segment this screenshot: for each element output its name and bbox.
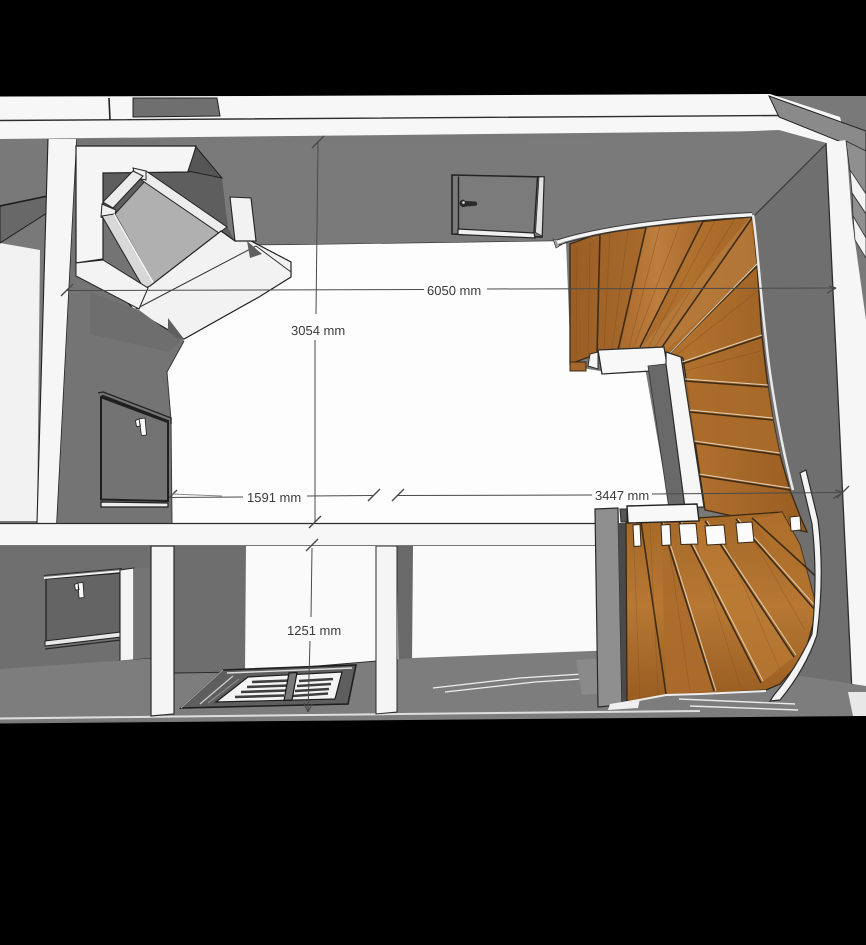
svg-text:3447 mm: 3447 mm <box>595 488 649 503</box>
svg-text:6050 mm: 6050 mm <box>427 283 481 298</box>
svg-text:1591 mm: 1591 mm <box>247 490 301 505</box>
svg-text:3054 mm: 3054 mm <box>291 323 345 338</box>
svg-text:1251 mm: 1251 mm <box>287 623 341 638</box>
